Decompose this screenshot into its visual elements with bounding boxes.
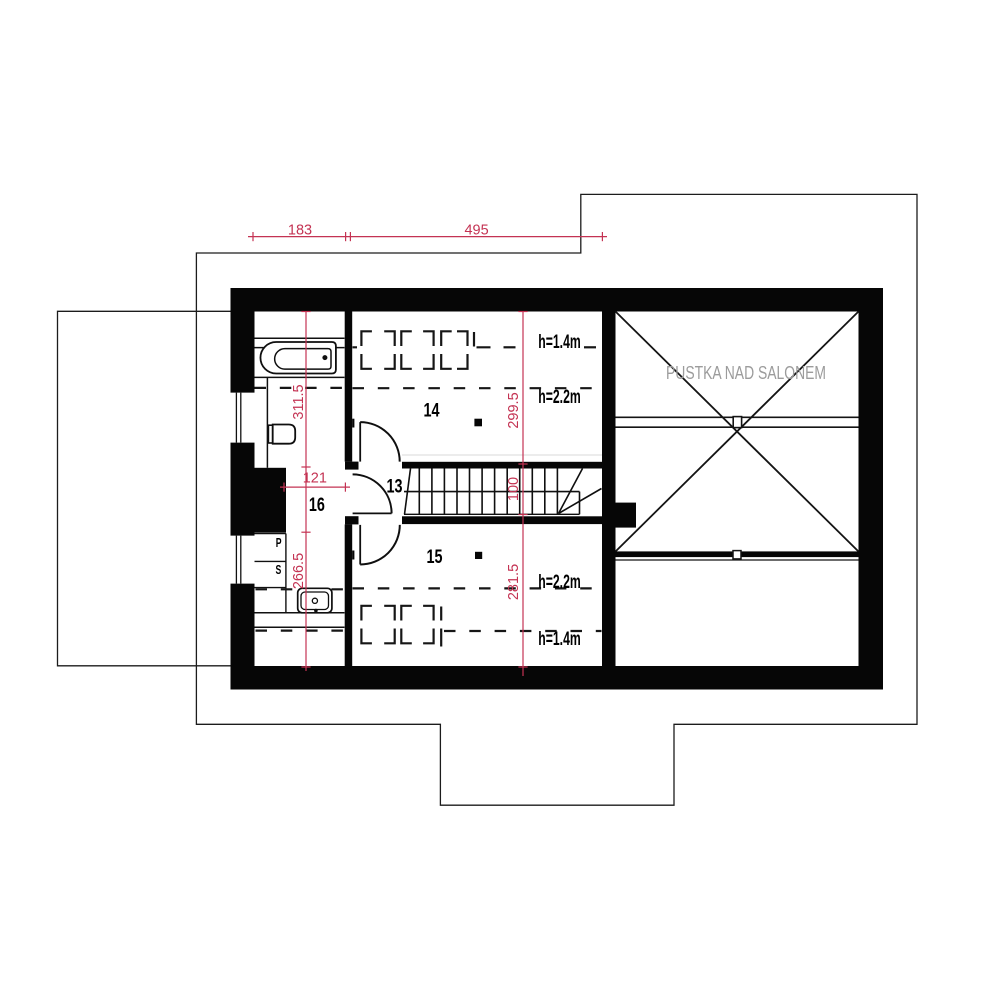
- svg-text:121: 121: [303, 471, 327, 487]
- svg-text:S: S: [276, 562, 282, 577]
- svg-text:PUSTKA NAD SALONEM: PUSTKA NAD SALONEM: [666, 362, 826, 383]
- svg-text:14: 14: [424, 400, 440, 421]
- svg-text:h=2.2m: h=2.2m: [538, 572, 581, 593]
- svg-text:183: 183: [288, 222, 312, 238]
- svg-text:15: 15: [427, 547, 443, 568]
- svg-text:16: 16: [309, 495, 325, 516]
- svg-text:100: 100: [506, 477, 522, 501]
- svg-text:h=2.2m: h=2.2m: [538, 387, 581, 408]
- svg-text:13: 13: [387, 476, 403, 497]
- svg-text:299.5: 299.5: [506, 392, 522, 428]
- svg-text:281.5: 281.5: [506, 564, 522, 600]
- svg-text:P: P: [276, 535, 282, 550]
- svg-text:266.5: 266.5: [291, 553, 307, 589]
- svg-text:h=1.4m: h=1.4m: [538, 629, 581, 650]
- svg-text:495: 495: [464, 222, 488, 238]
- svg-text:h=1.4m: h=1.4m: [538, 332, 581, 353]
- svg-text:311.5: 311.5: [291, 384, 307, 419]
